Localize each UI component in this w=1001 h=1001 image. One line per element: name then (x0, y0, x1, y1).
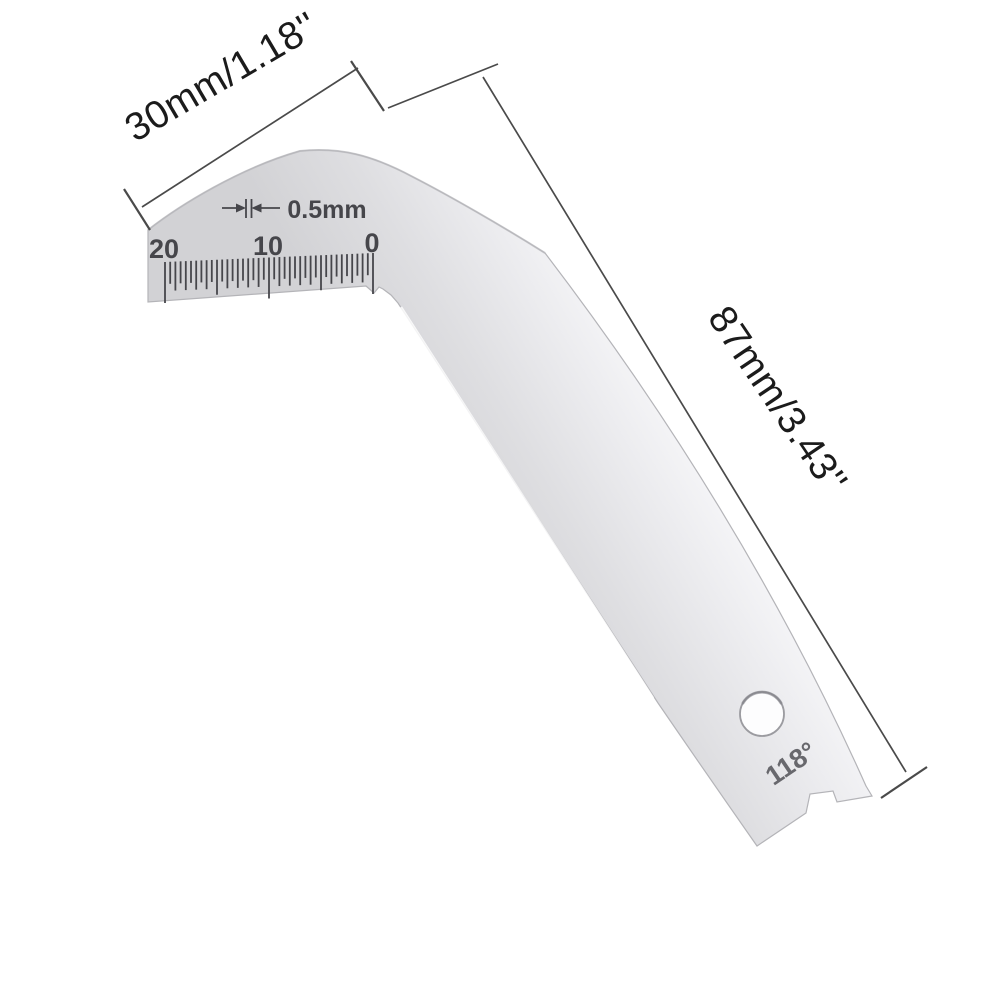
gauge-illustration: 0.5mm 20100 118° 30mm/1.18'' 87mm/3.43'' (0, 0, 1001, 1001)
product-photo: 0.5mm 20100 118° 30mm/1.18'' 87mm/3.43'' (0, 0, 1001, 1001)
width-dimension-tick-end (351, 61, 384, 111)
width-dimension-tick-start (124, 189, 150, 230)
length-extension-line (388, 64, 498, 108)
scale-label: 10 (253, 231, 283, 261)
scale-label: 0 (364, 228, 379, 258)
resolution-marking: 0.5mm (287, 196, 366, 224)
scale-label: 20 (149, 234, 179, 264)
length-dimension-tick-end (881, 767, 927, 798)
width-dimension-label: 30mm/1.18'' (118, 4, 326, 150)
